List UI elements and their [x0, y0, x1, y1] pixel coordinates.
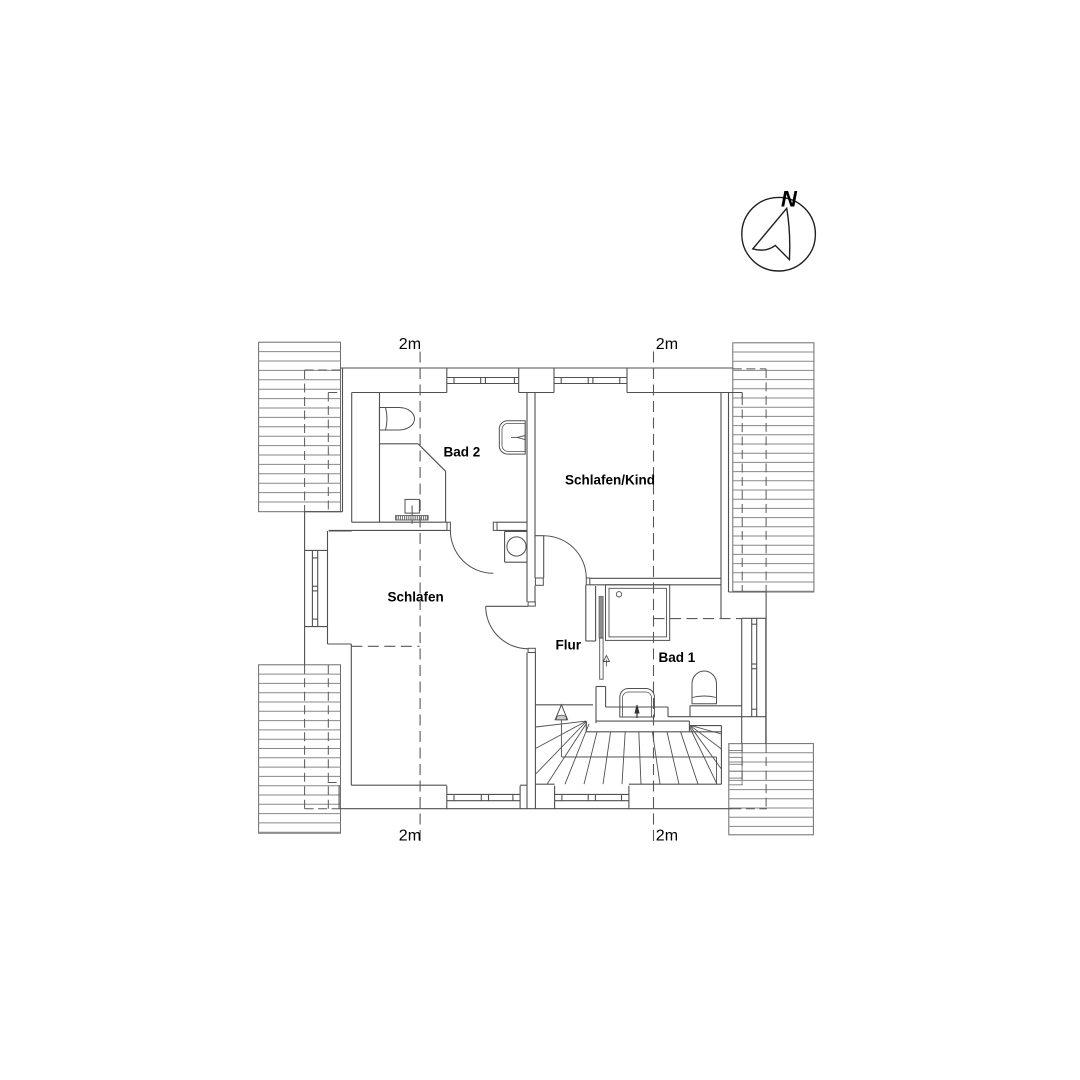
svg-text:Flur: Flur	[556, 638, 582, 653]
svg-text:2m: 2m	[656, 336, 678, 353]
svg-text:Bad 2: Bad 2	[444, 445, 481, 460]
svg-text:2m: 2m	[656, 828, 678, 845]
svg-text:Bad 1: Bad 1	[659, 650, 696, 665]
svg-text:2m: 2m	[399, 828, 421, 845]
svg-text:Schlafen/Kind: Schlafen/Kind	[565, 473, 655, 488]
svg-text:Schlafen: Schlafen	[388, 590, 444, 605]
svg-text:N: N	[781, 187, 798, 212]
svg-text:2m: 2m	[399, 336, 421, 353]
